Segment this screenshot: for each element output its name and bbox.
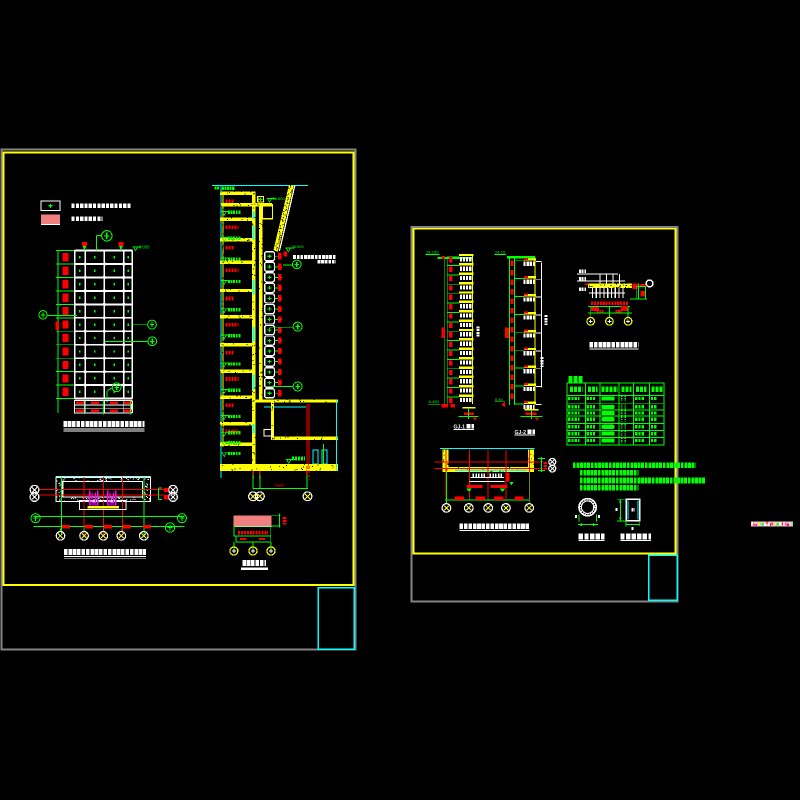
svg-text:38.600: 38.600 (273, 196, 286, 201)
svg-text:7600: 7600 (275, 483, 285, 488)
svg-text:24.15: 24.15 (495, 250, 506, 255)
svg-text:36.500: 36.500 (292, 244, 305, 249)
svg-text:6.450: 6.450 (429, 399, 440, 404)
svg-text:24.150: 24.150 (426, 250, 439, 255)
svg-text:0.000: 0.000 (139, 245, 150, 250)
svg-text:6.45: 6.45 (495, 397, 504, 402)
